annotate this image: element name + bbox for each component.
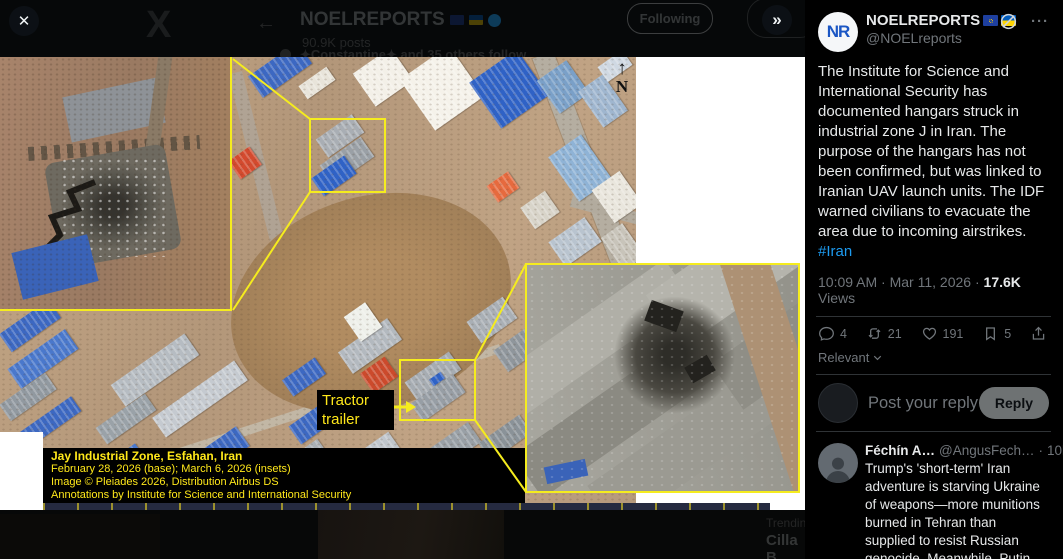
image-caption: Jay Industrial Zone, Esfahan, Iran Febru…	[43, 448, 525, 503]
chevron-down-icon	[871, 351, 884, 364]
caption-title: Jay Industrial Zone, Esfahan, Iran	[51, 450, 517, 463]
reply-input[interactable]: Post your reply	[868, 394, 979, 413]
repost-action[interactable]: 21	[866, 325, 902, 342]
x-logo: X	[146, 4, 171, 47]
following-button[interactable]: Following	[627, 3, 713, 34]
tweet-detail-sidebar: NR NOELREPORTS @NOELreports	[805, 0, 1063, 559]
like-action[interactable]: 191	[921, 325, 964, 342]
user-avatar	[818, 383, 858, 423]
avatar[interactable]: NR	[818, 12, 858, 52]
dimmed-page-bottom: Trending Cilla B	[0, 510, 805, 559]
reply-icon	[818, 325, 835, 342]
repost-count: 21	[888, 327, 902, 341]
author-handle[interactable]: @NOELreports	[866, 30, 999, 46]
tweet-text: The Institute for Science and Internatio…	[818, 62, 1049, 262]
grok-icon[interactable]	[999, 12, 1018, 31]
eu-flag-icon	[983, 15, 998, 26]
north-arrow-icon: ↑	[608, 59, 636, 78]
views-count: 17.6K	[984, 274, 1021, 290]
repost-icon	[866, 325, 883, 342]
collapse-sidebar-button[interactable]: »	[762, 5, 792, 35]
author-name[interactable]: NOELREPORTS	[866, 12, 980, 29]
bookmark-action[interactable]: 5	[982, 325, 1011, 342]
share-action[interactable]	[1030, 325, 1047, 342]
dimmed-profile-header: X ← NOELREPORTS 90.9K posts ✦Constantine…	[0, 0, 805, 57]
caption-annotations: Annotations by Institute for Science and…	[51, 489, 517, 502]
close-button[interactable]: ✕	[9, 6, 39, 36]
north-letter: N	[608, 78, 636, 95]
back-arrow-icon: ←	[256, 12, 276, 35]
north-indicator: ↑ N	[608, 59, 636, 95]
dimmed-media-thumbnail	[318, 510, 504, 559]
more-icon[interactable]: ···	[1031, 13, 1049, 30]
inset-bottomright-struck-roof	[525, 263, 800, 493]
white-margin-left	[0, 432, 43, 510]
caption-credit: Image © Pleiades 2026, Distribution Airb…	[51, 476, 517, 489]
bookmark-count: 5	[1004, 327, 1011, 341]
views-label: Views	[818, 290, 855, 306]
reply-time: 10h	[1047, 443, 1063, 458]
inset-texture	[0, 57, 230, 309]
reply-avatar[interactable]	[818, 443, 858, 483]
sort-label: Relevant	[818, 350, 869, 365]
debris-speckles	[527, 265, 798, 491]
share-icon	[1030, 325, 1047, 342]
reply-text: Trump's 'short-term' Iran adventure is s…	[865, 460, 1049, 559]
image-bottom-strip	[43, 503, 770, 510]
ukraine-flag-icon	[469, 15, 483, 25]
trending-topic: Cilla B	[766, 532, 805, 559]
verified-icon	[488, 14, 501, 27]
satellite-image[interactable]: Jay Industrial Zone, Esfahan, Iran Febru…	[0, 57, 805, 510]
x-image-lightbox: X ← NOELREPORTS 90.9K posts ✦Constantine…	[0, 0, 1063, 559]
hashtag-link[interactable]: #Iran	[818, 243, 852, 260]
tweet-time: 10:09 AM	[818, 274, 877, 290]
reply-button[interactable]: Reply	[979, 387, 1049, 419]
reply-author[interactable]: Féchín A…	[865, 443, 935, 458]
caption-dates: February 28, 2026 (base); March 6, 2026 …	[51, 463, 517, 476]
like-icon	[921, 325, 938, 342]
tweet-meta: 10:09 AM · Mar 11, 2026 · 17.6K Views	[818, 274, 1049, 306]
profile-title: NOELREPORTS	[300, 9, 501, 31]
reply-action[interactable]: 4	[818, 325, 847, 342]
like-count: 191	[943, 327, 964, 341]
eu-flag-icon	[450, 15, 464, 25]
default-avatar-icon	[821, 453, 855, 483]
bookmark-icon	[982, 325, 999, 342]
reply-sort-dropdown[interactable]: Relevant	[818, 348, 1049, 374]
tweet-date: Mar 11, 2026	[890, 274, 971, 290]
reply-header: Féchín A… @AngusFech… · 10h ···	[865, 443, 1049, 458]
inset-topleft-destroyed-hangar	[0, 57, 232, 311]
double-chevron-icon: »	[772, 10, 779, 30]
dimmed-media-thumbnail-2	[0, 514, 160, 559]
tractor-trailer-label: Tractor trailer	[317, 390, 394, 430]
reply-tweet[interactable]: Féchín A… @AngusFech… · 10h ··· Trump's …	[818, 432, 1049, 559]
reply-composer: Post your reply Reply	[818, 375, 1049, 431]
engagement-bar: 4 21 191 5	[818, 317, 1049, 348]
tweet-header: NR NOELREPORTS @NOELreports	[818, 12, 1049, 52]
close-icon: ✕	[18, 12, 31, 30]
reply-count: 4	[840, 327, 847, 341]
reply-handle[interactable]: @AngusFech…	[939, 443, 1035, 458]
